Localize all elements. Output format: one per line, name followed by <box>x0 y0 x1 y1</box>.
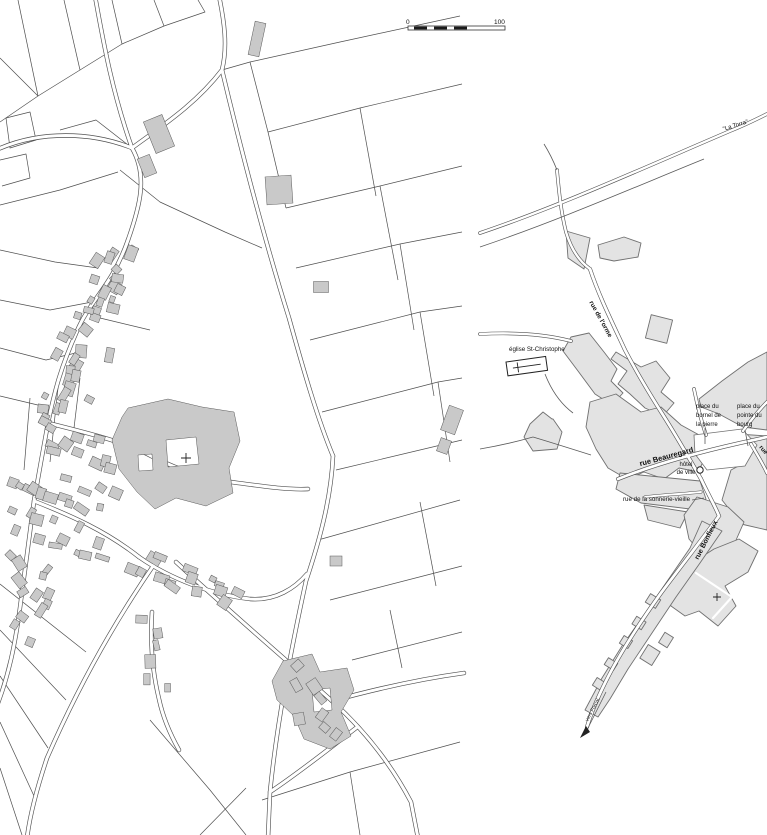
building <box>17 586 29 597</box>
building <box>95 482 107 494</box>
right-map-blocks <box>524 231 767 717</box>
label-place-bornel-3: la pierre <box>696 422 718 428</box>
label-place-bornel-2: bornel de <box>696 413 722 419</box>
label-place-pointe-1: place du <box>737 404 760 410</box>
left-map-buildings <box>5 21 464 749</box>
building <box>108 486 123 501</box>
left-map <box>0 0 464 835</box>
building <box>30 588 44 602</box>
building <box>49 515 58 524</box>
map-canvas: "La Torra" rue de l'orme église St-Chris… <box>0 0 767 835</box>
building <box>71 446 84 458</box>
right-map: "La Torra" rue de l'orme église St-Chris… <box>480 114 767 738</box>
building <box>165 683 171 692</box>
building <box>104 251 115 265</box>
map-screenshot: "La Torra" rue de l'orme église St-Chris… <box>0 0 767 835</box>
label-place-pointe-3: bourg <box>737 422 752 428</box>
building <box>104 347 115 363</box>
building <box>78 550 92 561</box>
building <box>191 586 202 597</box>
label-place-pointe-2: pointe du <box>737 413 762 419</box>
building <box>136 615 148 623</box>
building <box>95 553 110 562</box>
label-eglise: église St-Christophe <box>509 346 565 353</box>
building <box>25 636 36 647</box>
scale-end-label: 100 <box>494 19 505 26</box>
building <box>37 404 49 414</box>
building <box>43 491 59 505</box>
building <box>77 486 91 497</box>
town-hall-icon <box>697 467 703 473</box>
building <box>58 399 68 413</box>
building <box>111 273 124 283</box>
building <box>106 302 120 314</box>
church-icon <box>506 356 548 375</box>
building <box>33 533 46 545</box>
building <box>41 392 49 400</box>
building <box>34 602 48 618</box>
building <box>39 571 47 580</box>
building <box>50 347 63 361</box>
scale-start-label: 0 <box>406 19 410 26</box>
building <box>145 654 156 668</box>
building <box>96 503 104 511</box>
label-la-torra: "La Torra" <box>722 119 749 132</box>
building <box>104 462 117 475</box>
building <box>74 521 85 534</box>
label-rue-sonnerie: rue de la sonnerie-vieille <box>623 496 691 503</box>
label-place-bornel-1: place du <box>696 404 719 410</box>
church-cross-icon <box>181 453 191 463</box>
label-hotel-de-ville-1: hôtel <box>679 462 692 468</box>
building <box>73 502 89 517</box>
building <box>89 274 100 285</box>
building <box>144 674 150 685</box>
building <box>10 524 21 536</box>
building <box>73 311 82 320</box>
building <box>89 252 105 269</box>
building <box>153 628 163 639</box>
building <box>109 295 116 303</box>
building <box>84 394 95 404</box>
building <box>7 506 17 515</box>
building <box>60 474 72 483</box>
building <box>42 587 55 601</box>
label-hotel-de-ville-2: de ville <box>677 470 696 476</box>
building <box>92 536 104 550</box>
